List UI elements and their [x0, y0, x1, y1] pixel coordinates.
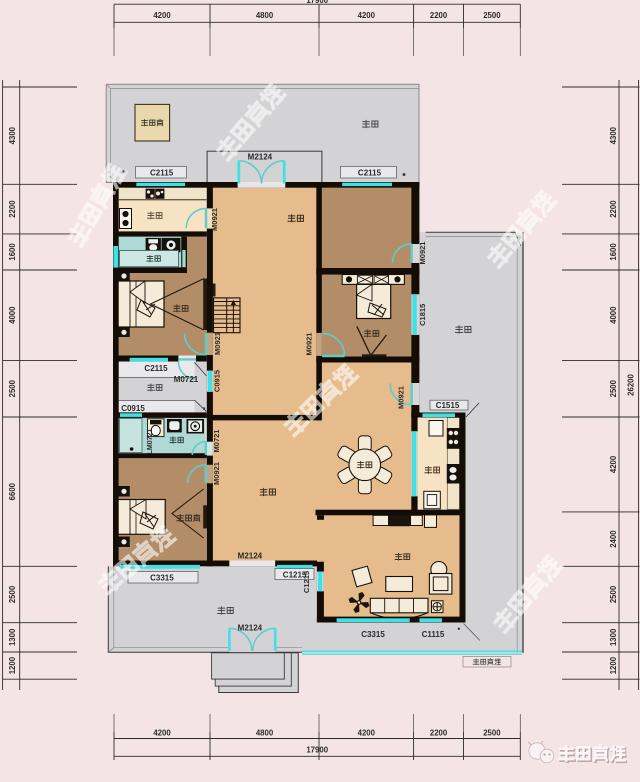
- svg-text:M2124: M2124: [248, 153, 273, 162]
- svg-text:2500: 2500: [483, 728, 501, 737]
- svg-text:26200: 26200: [627, 373, 636, 395]
- svg-text:M0921: M0921: [213, 332, 222, 355]
- svg-text:17900: 17900: [306, 746, 328, 755]
- svg-text:C3315: C3315: [361, 630, 385, 639]
- svg-text:4300: 4300: [8, 126, 17, 144]
- svg-text:LM0721: LM0721: [147, 429, 154, 455]
- svg-text:M0921: M0921: [212, 462, 221, 485]
- svg-text:2200: 2200: [8, 200, 17, 218]
- svg-text:4000: 4000: [8, 306, 17, 324]
- svg-text:M0721: M0721: [212, 430, 221, 453]
- svg-text:4800: 4800: [256, 728, 274, 737]
- svg-text:2200: 2200: [609, 200, 618, 218]
- svg-text:C2115: C2115: [144, 364, 168, 373]
- svg-text:1600: 1600: [8, 243, 17, 261]
- svg-text:M0921: M0921: [397, 386, 406, 409]
- svg-text:C2115: C2115: [150, 168, 174, 177]
- svg-text:6600: 6600: [8, 482, 17, 500]
- svg-text:2500: 2500: [609, 379, 618, 397]
- svg-text:1300: 1300: [8, 628, 17, 646]
- svg-text:C1215: C1215: [302, 571, 311, 593]
- svg-text:4200: 4200: [358, 728, 376, 737]
- svg-text:1600: 1600: [609, 243, 618, 261]
- svg-text:4800: 4800: [256, 11, 274, 20]
- svg-text:C1815: C1815: [418, 304, 427, 326]
- svg-text:1200: 1200: [8, 656, 17, 674]
- svg-text:17900: 17900: [306, 0, 328, 5]
- svg-text:4200: 4200: [153, 728, 171, 737]
- svg-text:M2124: M2124: [238, 623, 263, 632]
- svg-text:4200: 4200: [153, 11, 171, 20]
- svg-text:2400: 2400: [609, 530, 618, 548]
- svg-text:C1515: C1515: [436, 401, 460, 410]
- svg-text:C0915: C0915: [121, 404, 145, 413]
- svg-text:2500: 2500: [8, 585, 17, 603]
- svg-text:C3315: C3315: [150, 574, 174, 583]
- svg-text:C2115: C2115: [358, 168, 382, 177]
- svg-text:2500: 2500: [609, 585, 618, 603]
- svg-text:2500: 2500: [8, 379, 17, 397]
- svg-text:2500: 2500: [483, 11, 501, 20]
- svg-text:M0921: M0921: [210, 208, 219, 231]
- svg-text:2200: 2200: [430, 11, 448, 20]
- svg-text:4200: 4200: [358, 11, 376, 20]
- svg-text:4300: 4300: [609, 126, 618, 144]
- svg-text:C1115: C1115: [422, 630, 445, 639]
- svg-text:1200: 1200: [609, 656, 618, 674]
- svg-text:4200: 4200: [609, 455, 618, 473]
- svg-text:2200: 2200: [430, 728, 448, 737]
- svg-text:M0921: M0921: [418, 242, 427, 265]
- svg-text:C0915: C0915: [213, 370, 222, 392]
- svg-text:M0721: M0721: [174, 375, 199, 384]
- svg-text:M2124: M2124: [238, 552, 263, 561]
- svg-text:M0921: M0921: [305, 333, 314, 356]
- svg-text:4000: 4000: [609, 306, 618, 324]
- svg-text:1300: 1300: [609, 628, 618, 646]
